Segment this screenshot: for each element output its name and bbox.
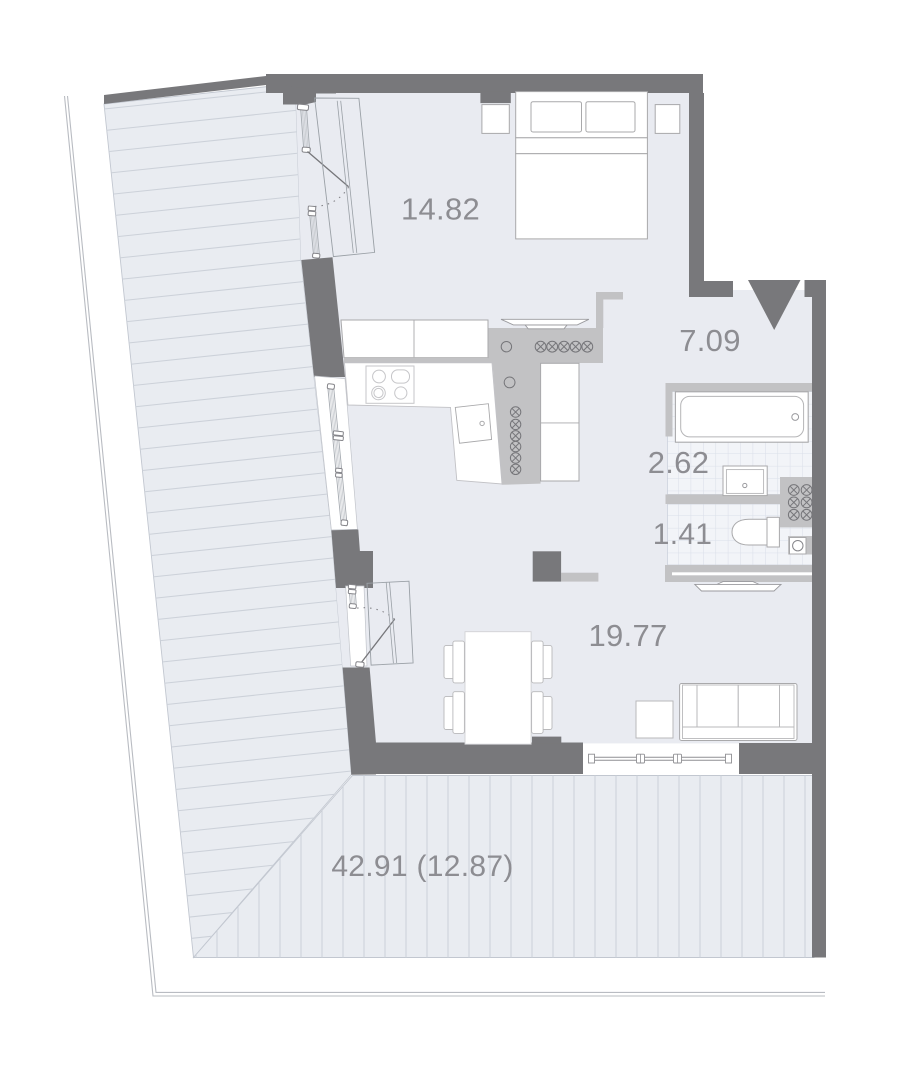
svg-text:42.91 (12.87): 42.91 (12.87) bbox=[331, 850, 513, 883]
svg-text:7.09: 7.09 bbox=[679, 323, 741, 358]
svg-text:2.62: 2.62 bbox=[648, 445, 710, 480]
svg-text:19.77: 19.77 bbox=[588, 618, 667, 653]
svg-text:14.82: 14.82 bbox=[401, 192, 480, 227]
svg-text:1.41: 1.41 bbox=[653, 518, 713, 551]
